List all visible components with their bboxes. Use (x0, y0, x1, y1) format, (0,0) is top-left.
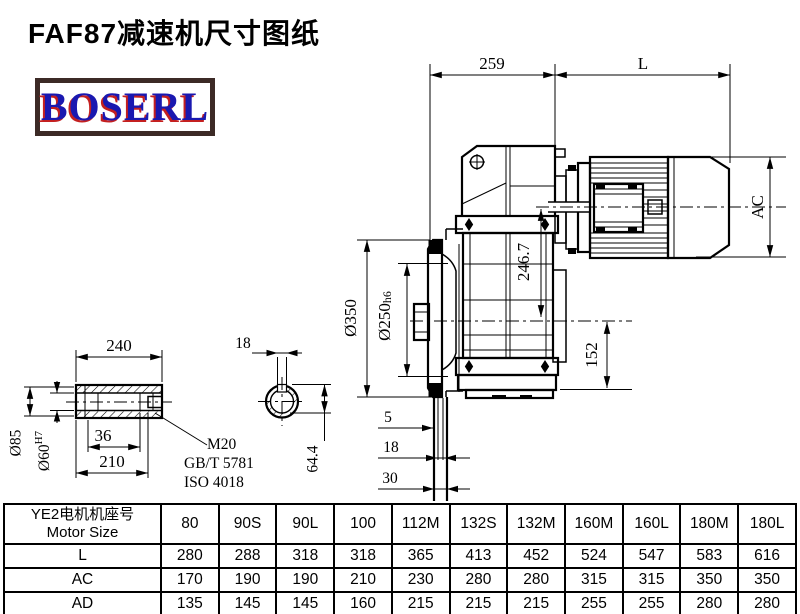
dim-5-label: 5 (384, 409, 392, 426)
dim-36-label: 36 (95, 426, 112, 445)
table-cell: 280 (507, 568, 565, 592)
hollow-shaft-detail: 240 Ø85 Ø60H7 36 210 M20 GB/T 57 (8, 336, 254, 491)
table-cell: 190 (219, 568, 277, 592)
drawing-sheet: FAF87减速机尺寸图纸 BOSERL 259 L (0, 0, 800, 614)
dim-L-label: L (638, 54, 648, 73)
table-cell: 280 (450, 568, 508, 592)
table-cell: 350 (738, 568, 796, 592)
row-label: AD (4, 592, 161, 614)
terminal-box (594, 184, 643, 232)
dim-housing-group: 246.7 152 (410, 209, 632, 390)
table-cell: 255 (623, 592, 681, 614)
dim-259-label: 259 (479, 54, 505, 73)
table-cell: 318 (276, 544, 334, 568)
dim-18-label: 18 (383, 439, 399, 456)
table-cell: 280 (161, 544, 219, 568)
shaft-end-cap (414, 304, 429, 340)
table-cell: 215 (392, 592, 450, 614)
table-cell: 288 (219, 544, 277, 568)
bolt-icon (541, 218, 549, 231)
table-cell: 160 (334, 592, 392, 614)
column-header: 132S (450, 504, 508, 544)
output-shaft (434, 397, 447, 501)
table-cell: 524 (565, 544, 623, 568)
bolt-icon (541, 360, 549, 373)
dim-key18-label: 18 (235, 335, 251, 352)
dim-644-label: 64.4 (305, 445, 322, 472)
thread-label: M20 (207, 436, 237, 453)
table-cell: 318 (334, 544, 392, 568)
dim-30-label: 30 (382, 470, 398, 487)
column-header: 132M (507, 504, 565, 544)
row-label: AC (4, 568, 161, 592)
row-label: L (4, 544, 161, 568)
table-cell: 547 (623, 544, 681, 568)
table-cell: 280 (680, 592, 738, 614)
motor-size-header: YE2电机机座号Motor Size (4, 504, 161, 544)
dim-350-label: Ø350 (341, 299, 360, 337)
table-cell: 190 (276, 568, 334, 592)
table-cell: 315 (565, 568, 623, 592)
table-row: AD135145145160215215215255255280280 (4, 592, 796, 614)
dim-210-label: 210 (99, 452, 125, 471)
motor-size-table: YE2电机机座号Motor Size8090S90L100112M132S132… (3, 503, 797, 614)
dim-250h6-label: Ø250h6 (375, 291, 394, 341)
table-cell: 135 (161, 592, 219, 614)
column-header: 160M (565, 504, 623, 544)
dim-60H7-label: Ø60H7 (33, 430, 53, 471)
table-cell: 145 (219, 592, 277, 614)
table-row: AC170190190210230280280315315350350 (4, 568, 796, 592)
dim-240-label: 240 (106, 336, 132, 355)
dim-2467-label: 246.7 (514, 242, 533, 281)
column-header: 100 (334, 504, 392, 544)
table-cell: 315 (623, 568, 681, 592)
table-cell: 230 (392, 568, 450, 592)
column-header: 90L (276, 504, 334, 544)
table-cell: 616 (738, 544, 796, 568)
bore-section-detail: 18 64.4 (235, 335, 331, 473)
table-cell: 145 (276, 592, 334, 614)
column-header: 112M (392, 504, 450, 544)
column-header: 80 (161, 504, 219, 544)
table-cell: 215 (450, 592, 508, 614)
table-cell: 583 (680, 544, 738, 568)
table-row: L280288318318365413452524547583616 (4, 544, 796, 568)
table-cell: 170 (161, 568, 219, 592)
bolt-icon (465, 218, 473, 231)
table-cell: 280 (738, 592, 796, 614)
table-cell: 365 (392, 544, 450, 568)
dim-85-label: Ø85 (8, 429, 25, 456)
column-header: 160L (623, 504, 681, 544)
column-header: 180M (680, 504, 738, 544)
table-cell: 413 (450, 544, 508, 568)
standard-gb-label: GB/T 5781 (184, 455, 254, 472)
dim-AC-label: AC (748, 195, 767, 219)
standard-iso-label: ISO 4018 (184, 474, 244, 491)
column-header: 90S (219, 504, 277, 544)
table-cell: 210 (334, 568, 392, 592)
table-cell: 255 (565, 592, 623, 614)
gearbox-housing (456, 146, 566, 398)
bolt-icon (465, 360, 473, 373)
dim-152-label: 152 (582, 342, 601, 368)
table-cell: 215 (507, 592, 565, 614)
table-cell: 452 (507, 544, 565, 568)
dim-flange-group: Ø350 Ø250h6 (341, 240, 448, 397)
dim-shaft-steps: 5 18 30 (378, 409, 470, 492)
table-cell: 350 (680, 568, 738, 592)
column-header: 180L (738, 504, 796, 544)
